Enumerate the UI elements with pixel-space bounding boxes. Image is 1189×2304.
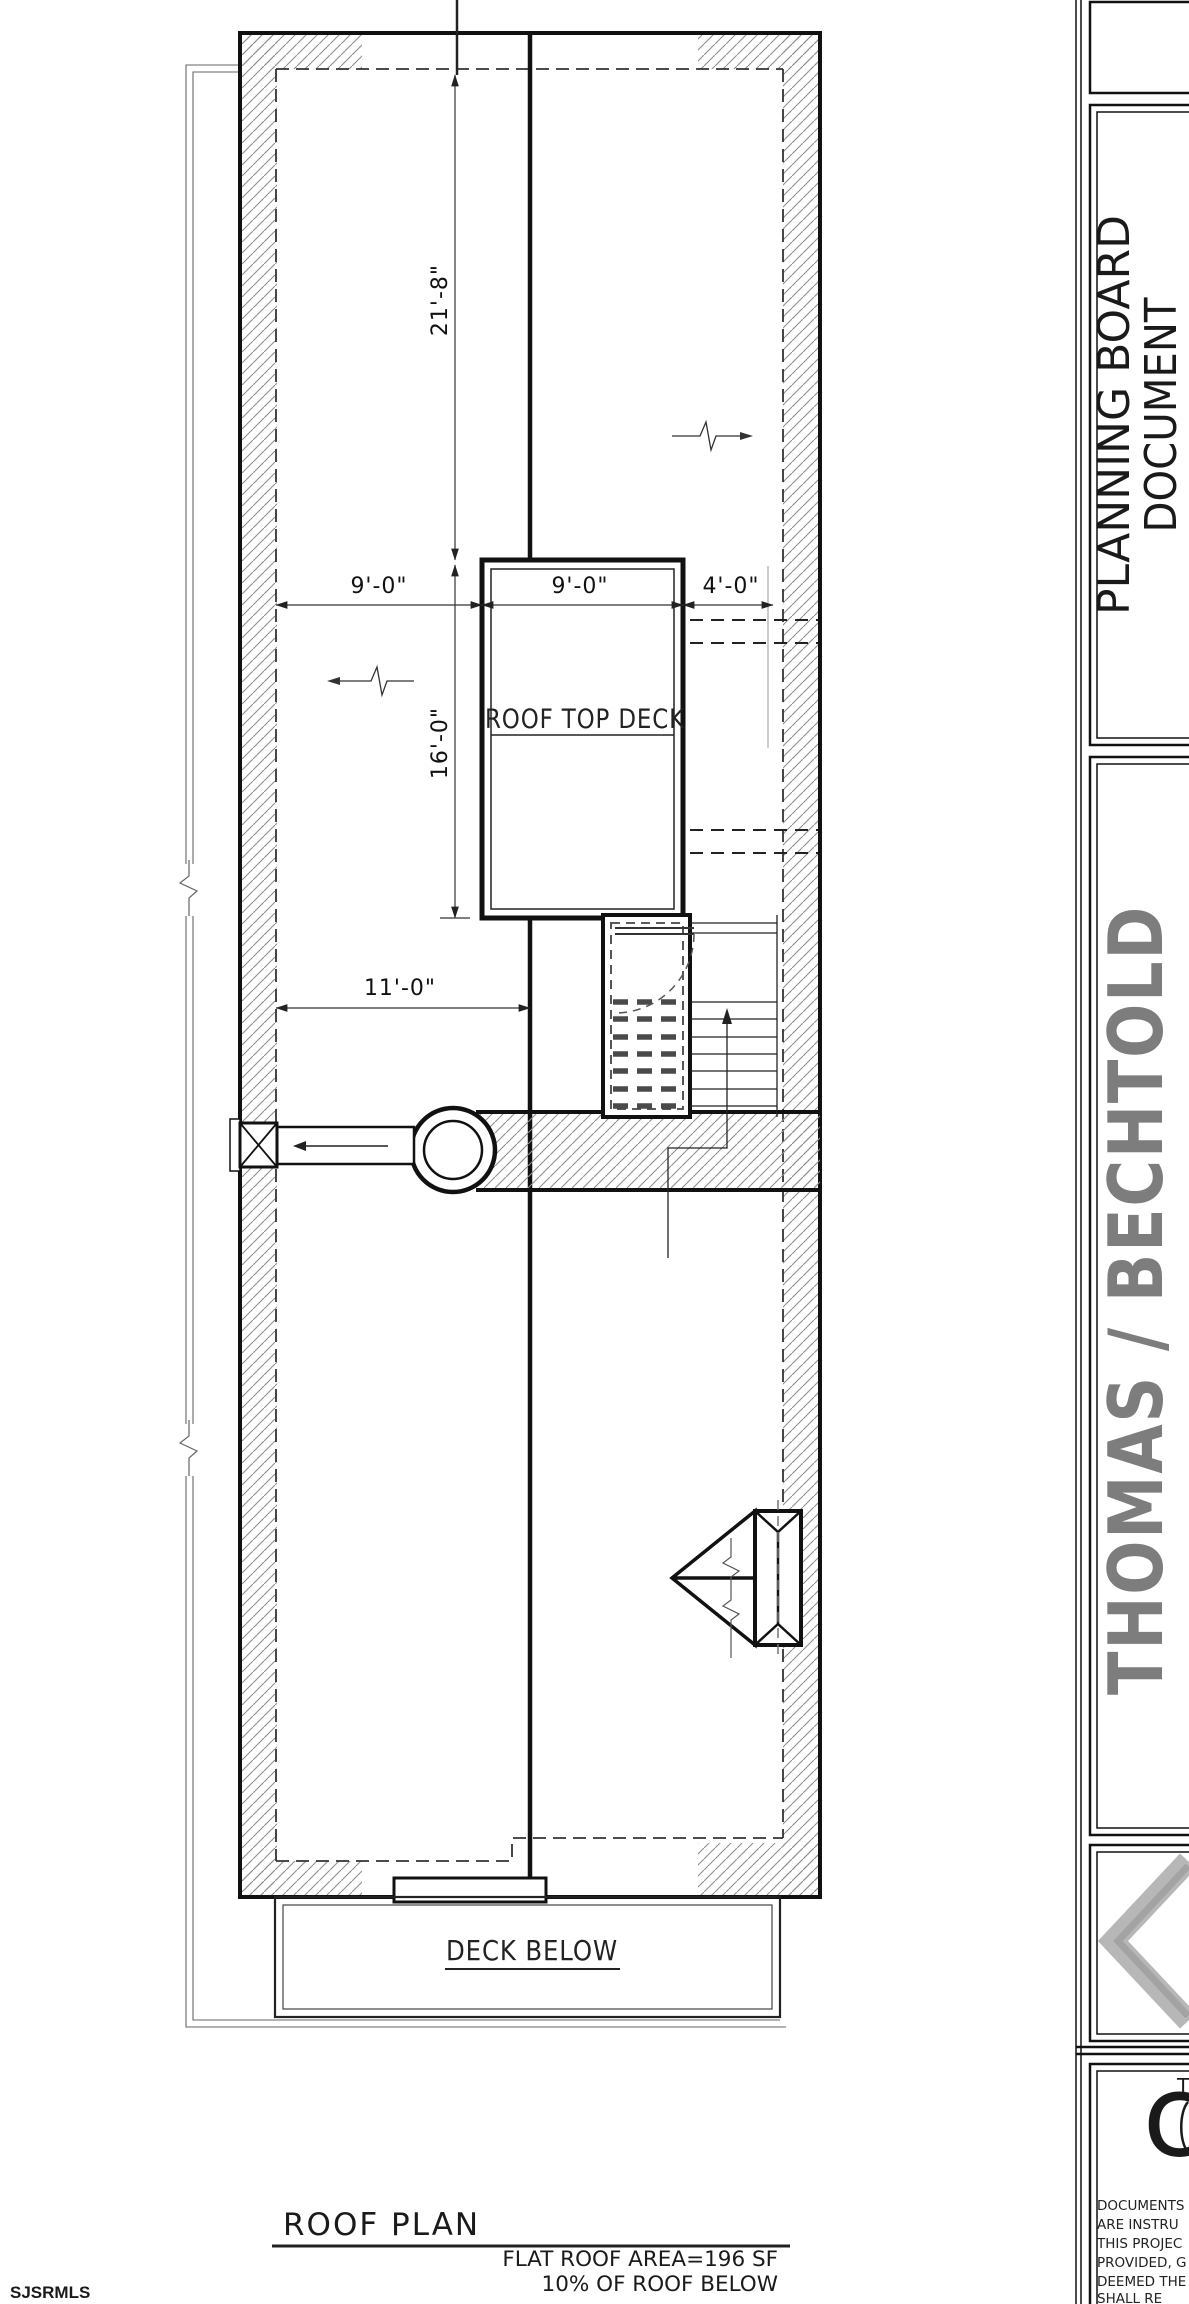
disclaimer-line: DEEMED THE [1097,2274,1186,2290]
disclaimer-line: THIS PROJEC [1096,2236,1182,2252]
dim-9-0-mid: 9'-0" [551,574,608,599]
note-flat-roof-area: FLAT ROOF AREA=196 SF [502,2247,778,2272]
roof-band [411,1108,820,1192]
dim-9-0-left: 9'-0" [350,574,407,599]
chevron-icon [1113,1861,1188,2021]
drawing-sheet: 9'-0" 9'-0" 4'-0" 21'-8" 16'-0" 11'-0" R… [0,0,1189,2304]
plan-title: ROOF PLAN [283,2207,480,2243]
dim-11-0: 11'-0" [364,976,436,1001]
stair-up-arrow [722,1008,732,1024]
bay-window-roof [672,1511,801,1645]
watermark: SJSRMLS [10,2283,90,2302]
dim-21-8: 21'-8" [428,264,453,336]
disclaimer-line: PROVIDED, G [1097,2255,1187,2271]
titleblock-box-top [1090,2,1189,93]
roof-plan-drawing: 9'-0" 9'-0" 4'-0" 21'-8" 16'-0" 11'-0" R… [0,0,1189,2304]
note-roof-percent: 10% OF ROOF BELOW [542,2272,778,2297]
exhaust-duct [230,1119,414,1171]
disclaimer-text: DOCUMENTS ARE INSTRU THIS PROJEC PROVIDE… [1096,2198,1187,2304]
disclaimer-line: ARE INSTRU [1097,2217,1179,2233]
deck-below-label: DECK BELOW [446,1934,618,1967]
dim-16-0: 16'-0" [428,707,453,779]
sheet-title: ROOF PLAN FLAT ROOF AREA=196 SF 10% OF R… [272,2207,790,2297]
title-block: PLANNING BOARD DOCUMENT THOMAS / BECHTOL… [1076,0,1189,2304]
lot-line-breaks [177,860,197,1476]
stair-enclosure [603,915,694,1117]
stamp-line1: PLANNING BOARD [1089,215,1140,615]
roof-top-deck [482,560,683,918]
roof-top-deck-label: ROOF TOP DECK [485,704,685,735]
hidden-stair-treads [613,1002,681,1106]
dim-4-0: 4'-0" [702,574,759,599]
disclaimer-line: DOCUMENTS [1097,2198,1184,2214]
disclaimer-line: SHALL RE [1097,2291,1162,2304]
fan-circle-inner [424,1121,482,1179]
project-name: THOMAS / BECHTOLD [1092,905,1180,1695]
bottom-notch [394,1878,546,1902]
stamp-line2: DOCUMENT [1136,297,1187,532]
